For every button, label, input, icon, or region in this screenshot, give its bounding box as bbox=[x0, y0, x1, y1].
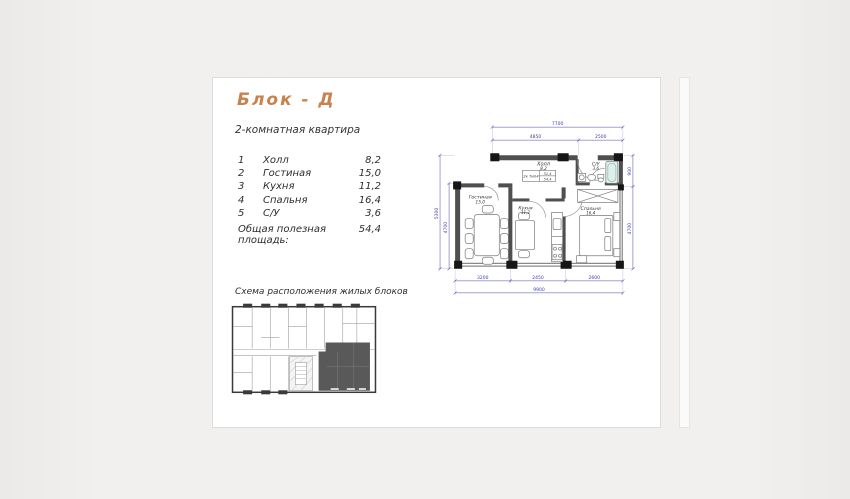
dim-bottom-1: 3200 bbox=[477, 275, 489, 281]
table-row: 1 Холл 8,2 bbox=[238, 154, 381, 167]
highlighted-block-windows bbox=[331, 388, 366, 390]
total-area-label: Общая полезная площадь: bbox=[238, 224, 359, 246]
kitchen-furniture bbox=[515, 213, 562, 262]
room-name: Гостиная bbox=[263, 168, 335, 179]
total-area-row: Общая полезная площадь: 54,4 bbox=[238, 224, 381, 246]
room-area: 11,2 bbox=[335, 181, 381, 192]
stairwell bbox=[289, 357, 312, 391]
dim-top-right: 2500 bbox=[595, 134, 607, 140]
stamp-living-area: 31,4 bbox=[544, 172, 552, 176]
room-number: 5 bbox=[238, 208, 263, 219]
balcony-stubs-bottom bbox=[243, 390, 287, 394]
bedroom-furniture bbox=[577, 189, 620, 262]
room-number: 1 bbox=[238, 155, 263, 166]
dim-bottom-total: 9900 bbox=[533, 287, 545, 293]
page-title: Блок - Д bbox=[237, 90, 336, 110]
room-number: 4 bbox=[238, 195, 263, 206]
room-legend-table: 1 Холл 8,2 2 Гостиная 15,0 3 Кухня 11,2 … bbox=[238, 154, 381, 220]
room-area: 8,2 bbox=[335, 155, 381, 166]
type-stamp: 2к Тип4 31,4 54,4 bbox=[522, 170, 555, 181]
dim-right-top: 900 bbox=[627, 167, 633, 176]
living-room-furniture bbox=[465, 205, 508, 264]
total-area-value: 54,4 bbox=[359, 224, 381, 246]
table-row: 3 Кухня 11,2 bbox=[238, 180, 381, 193]
hall-area: 8,2 bbox=[540, 166, 547, 172]
living-area: 15,0 bbox=[475, 199, 485, 205]
room-number: 3 bbox=[238, 181, 263, 192]
table-row: 2 Гостиная 15,0 bbox=[238, 167, 381, 180]
desktop-background: Блок - Д 2-комнатная квартира 1 Холл 8,2… bbox=[0, 0, 850, 499]
room-name: Спальня bbox=[263, 195, 335, 206]
table-row: 5 С/У 3,6 bbox=[238, 207, 381, 220]
document-page: Блок - Д 2-комнатная квартира 1 Холл 8,2… bbox=[212, 77, 661, 428]
stamp-type: 2к Тип4 bbox=[523, 174, 539, 178]
apartment-type-label: 2-комнатная квартира bbox=[235, 124, 360, 136]
kitchen-area: 11,2 bbox=[521, 210, 530, 215]
dim-bottom-3: 2600 bbox=[588, 275, 600, 281]
room-name: Холл bbox=[263, 155, 335, 166]
room-number: 2 bbox=[238, 168, 263, 179]
dim-left-inner: 4700 bbox=[443, 222, 449, 234]
building-scheme-drawing bbox=[230, 302, 378, 396]
table-row: 4 Спальня 16,4 bbox=[238, 194, 381, 207]
page-edge-strip bbox=[679, 77, 690, 428]
scheme-caption: Схема расположения жилых блоков bbox=[235, 287, 408, 297]
apartment-floorplan-drawing: 7700 4850 2500 5300 4700 900 4700 3200 2… bbox=[432, 113, 649, 304]
dimension-lines bbox=[439, 126, 635, 295]
bedroom-area: 16,4 bbox=[586, 211, 595, 216]
living-label: Гостиная bbox=[469, 194, 492, 200]
room-area: 3,6 bbox=[335, 208, 381, 219]
room-area: 15,0 bbox=[335, 168, 381, 179]
bath-area: 3,6 bbox=[593, 166, 600, 171]
dimension-guides bbox=[438, 125, 635, 295]
dim-left-outer: 5300 bbox=[434, 208, 440, 220]
dim-right-bottom: 4700 bbox=[627, 223, 633, 235]
dim-bottom-2: 2450 bbox=[532, 275, 544, 281]
room-area: 16,4 bbox=[335, 195, 381, 206]
stamp-total-area: 54,4 bbox=[544, 177, 552, 181]
room-name: С/У bbox=[263, 208, 335, 219]
dimension-labels: 7700 4850 2500 5300 4700 900 4700 3200 2… bbox=[434, 121, 633, 293]
dim-top-left: 4850 bbox=[530, 134, 542, 140]
dim-top-total: 7700 bbox=[552, 121, 564, 127]
room-name: Кухня bbox=[263, 181, 335, 192]
